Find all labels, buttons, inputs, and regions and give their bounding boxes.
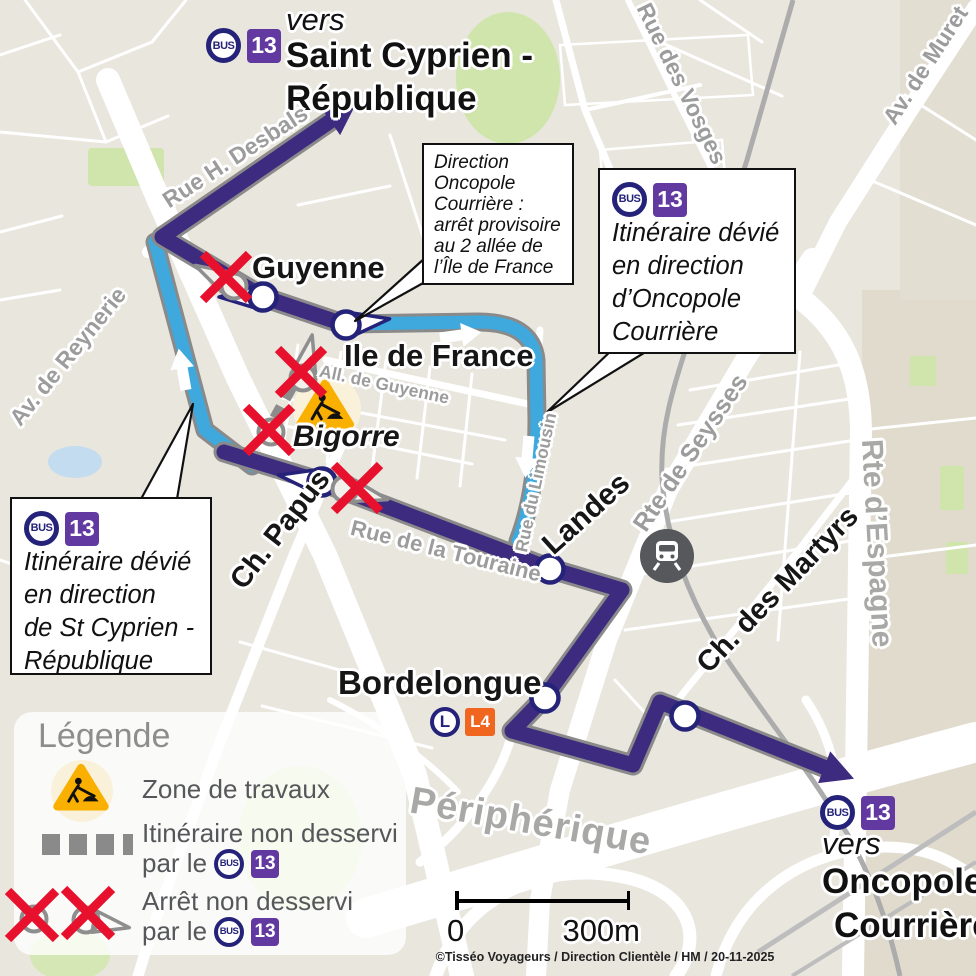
line13-badge: 13 bbox=[65, 512, 99, 546]
callout-deviation-stcyprien: BUS 13 Itinéraire dévié en direction de … bbox=[10, 497, 212, 675]
legend-parle-text: par le bbox=[142, 916, 207, 947]
destination-bottom-vers: vers bbox=[822, 826, 976, 862]
bus-badge-icon: BUS bbox=[820, 795, 855, 830]
destination-bottom-line2: Courrière bbox=[834, 906, 976, 946]
l4-badge: L4 bbox=[465, 708, 495, 736]
legend-roadworks-icon bbox=[51, 760, 113, 822]
destination-bottom: vers Oncopole Courrière bbox=[822, 826, 976, 946]
callout-stcyprien-line: de St Cyprien - bbox=[24, 612, 202, 645]
legend-arret-label2: par le BUS 13 bbox=[142, 916, 279, 947]
callout-oncopole-line: Itinéraire dévié bbox=[612, 217, 786, 250]
line13-badge: 13 bbox=[251, 918, 279, 946]
bus-badge-icon: BUS bbox=[214, 849, 244, 879]
scale-bar-tick-left bbox=[455, 891, 459, 910]
callout-provisional-line: arrêt provisoire bbox=[434, 215, 566, 236]
destination-top-badges: BUS 13 bbox=[206, 28, 281, 63]
stop-label-guyenne: Guyenne bbox=[252, 250, 385, 286]
legend-itineraire-label: Itinéraire non desservi bbox=[142, 818, 398, 849]
line13-badge: 13 bbox=[861, 796, 895, 830]
legend-crossed-stop-icon bbox=[8, 889, 131, 939]
destination-top: vers Saint Cyprien - République bbox=[286, 2, 533, 119]
callout-provisional-line: Courrière : bbox=[434, 194, 566, 215]
legend-panel: Légende Zone de travaux I bbox=[14, 712, 406, 955]
stop-martyrs-marker bbox=[672, 703, 699, 730]
callout-oncopole-line: d’Oncopole bbox=[612, 283, 786, 316]
callout-provisional-line: Oncopole bbox=[434, 173, 566, 194]
line13-badge: 13 bbox=[251, 850, 279, 878]
destination-bottom-badges: BUS 13 bbox=[820, 795, 895, 830]
destination-top-line2: République bbox=[286, 79, 533, 119]
callout-deviation-oncopole: BUS 13 Itinéraire dévié en direction d’O… bbox=[598, 168, 796, 354]
bus-badge-icon: BUS bbox=[214, 917, 244, 947]
line13-badge: 13 bbox=[653, 183, 687, 217]
callout-oncopole-line: en direction bbox=[612, 250, 786, 283]
bus-badge-icon: BUS bbox=[24, 511, 59, 546]
scale-bar-tick-right bbox=[627, 891, 631, 910]
legend-dashed-route-icon bbox=[42, 834, 133, 855]
callout-provisional-line: l’Île de France bbox=[434, 257, 566, 278]
scale-bar-line bbox=[455, 899, 630, 903]
bus-badge-icon: BUS bbox=[206, 28, 241, 63]
callout-stcyprien-line: Itinéraire dévié bbox=[24, 546, 202, 579]
credit-line: ©Tisséo Voyageurs / Direction Clientèle … bbox=[405, 950, 805, 964]
destination-bottom-line1: Oncopole bbox=[822, 862, 976, 902]
callout-stcyprien-line: en direction bbox=[24, 579, 202, 612]
destination-top-vers: vers bbox=[286, 2, 533, 38]
legend-zone-label: Zone de travaux bbox=[142, 774, 330, 805]
stop-label-bigorre: Bigorre bbox=[293, 420, 400, 454]
callout-provisional-line: au 2 allée de bbox=[434, 236, 566, 257]
legend-parle-text: par le bbox=[142, 848, 207, 879]
callout-provisional-line: Direction bbox=[434, 152, 566, 173]
scale-zero-label: 0 bbox=[447, 913, 464, 949]
bus-badge-icon: BUS bbox=[612, 182, 647, 217]
transit-deviation-map: BUS 13 vers Saint Cyprien - République D… bbox=[0, 0, 976, 976]
callout-provisional-stop: Direction Oncopole Courrière : arrêt pro… bbox=[422, 143, 574, 285]
line13-badge: 13 bbox=[247, 29, 281, 63]
stop-label-bordelongue: Bordelongue bbox=[338, 664, 542, 702]
stop-label-ile-de-france: Ile de France bbox=[344, 338, 534, 374]
pond bbox=[48, 446, 102, 478]
train-station-icon bbox=[640, 529, 694, 583]
callout-oncopole-line: Courrière bbox=[612, 316, 786, 349]
lineo-badge-icon: L bbox=[430, 707, 460, 737]
scale-bar: 0 300m bbox=[455, 891, 630, 951]
destination-top-line1: Saint Cyprien - bbox=[286, 36, 533, 76]
lineo-l4-badges: L L4 bbox=[430, 707, 495, 737]
legend-arret-label: Arrêt non desservi bbox=[142, 886, 353, 917]
legend-itineraire-label2: par le BUS 13 bbox=[142, 848, 279, 879]
callout-stcyprien-line: République bbox=[24, 645, 202, 678]
scale-distance-label: 300m bbox=[562, 913, 640, 949]
